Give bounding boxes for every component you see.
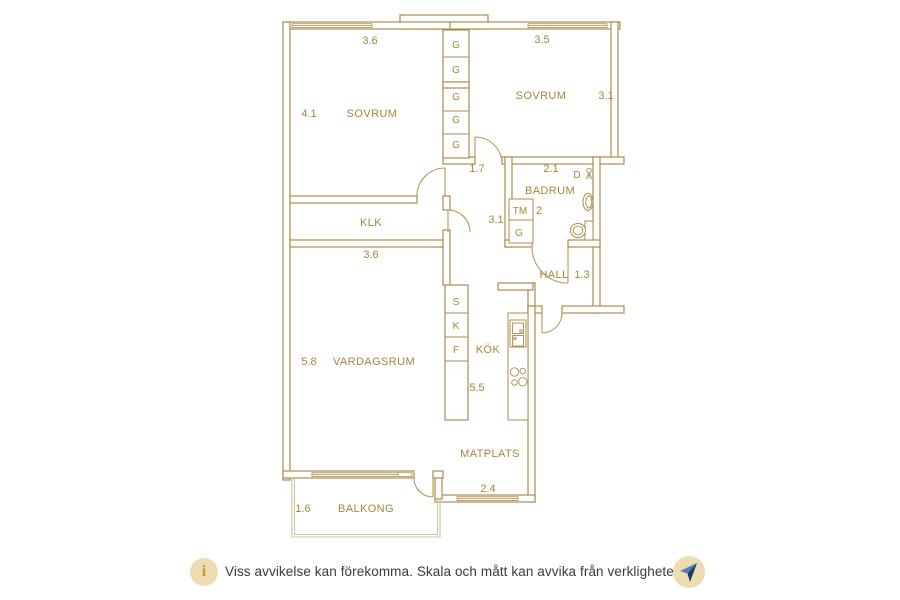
wardrobe-column: G G G G G <box>443 30 469 158</box>
room-label-sovrum-2: SOVRUM <box>516 90 567 102</box>
closet-label: G <box>452 115 460 126</box>
room-label-matplats: MATPLATS <box>460 448 520 460</box>
window <box>398 473 412 477</box>
wall-segment <box>593 157 600 313</box>
room-label-vardagsrum: VARDAGSRUM <box>333 356 415 368</box>
wall-segment <box>443 196 450 210</box>
floorplan-drawing: G G G G G S K F <box>0 0 900 548</box>
shower-label: D <box>573 170 580 181</box>
wall-segment <box>283 22 290 480</box>
dim-balkong: 1.6 <box>295 503 310 515</box>
dim-matplats: 2.4 <box>480 483 495 495</box>
cabinet-label-freezer: F <box>453 345 459 356</box>
wall-segment <box>433 471 443 478</box>
disclaimer-text: Viss avvikelse kan förekomma. Skala och … <box>225 564 685 579</box>
room-label-hall: HALL <box>539 269 568 281</box>
dim-sovrum-2-depth: 3.1 <box>598 90 613 102</box>
dim-sovrum-1-depth: 4.1 <box>301 108 316 120</box>
kitchen-counter <box>508 313 528 420</box>
closet-label: G <box>452 92 460 103</box>
door-klk <box>448 210 470 232</box>
shower-icon <box>586 168 592 179</box>
wall-segment <box>290 240 443 247</box>
dim-corridor: 1.7 <box>469 163 484 175</box>
closet-label: G <box>452 65 460 76</box>
north-arrow-glyph <box>673 556 705 588</box>
wall-segment <box>498 283 533 290</box>
wall-segment <box>562 306 624 313</box>
wall-segment <box>568 240 600 247</box>
door-sovrum-2 <box>475 137 502 164</box>
kitchen-cabinets: S K F <box>445 285 468 420</box>
disclaimer-bar: i Viss avvikelse kan förekomma. Skala oc… <box>0 548 900 600</box>
info-icon-glyph: i <box>202 563 206 581</box>
wall-segment <box>443 82 469 88</box>
cabinet-label-fridge: K <box>453 321 460 332</box>
dim-corridor-2: 3.1 <box>488 214 503 226</box>
dim-klk: 3.6 <box>363 249 378 261</box>
washer-label: TM <box>513 206 527 217</box>
dim-sovrum-1-width: 3.6 <box>362 35 377 47</box>
toilet-icon <box>571 221 594 240</box>
dim-badrum-width: 2.1 <box>543 163 558 175</box>
wall-segment <box>290 196 417 203</box>
wall-segment <box>528 306 535 502</box>
badrum-closet-label: G <box>515 228 523 239</box>
closet-label: G <box>452 40 460 51</box>
cabinet-label-pantry: S <box>453 297 460 308</box>
dim-vardagsrum: 5.8 <box>301 356 316 368</box>
dim-badrum-2: 2 <box>536 205 542 217</box>
door-balkong <box>414 478 433 497</box>
wall-segment <box>435 477 442 499</box>
wall-segment <box>443 230 450 285</box>
info-icon: i <box>190 558 218 586</box>
floorplan: G G G G G S K F <box>0 0 900 548</box>
room-label-kok: KÖK <box>476 344 501 356</box>
room-label-sovrum-1: SOVRUM <box>347 108 398 120</box>
room-label-badrum: BADRUM <box>525 185 575 197</box>
room-label-klk: KLK <box>360 217 382 229</box>
room-label-balkong: BALKONG <box>338 503 394 515</box>
dim-hall: 1.3 <box>574 269 589 281</box>
door-sovrum-1 <box>417 168 445 196</box>
dim-sovrum-2-width: 3.5 <box>534 34 549 46</box>
north-arrow-icon <box>673 556 705 588</box>
dim-kok: 5.5 <box>469 382 484 394</box>
door-entrance <box>542 313 562 333</box>
closet-label: G <box>452 140 460 151</box>
washbasin-icon <box>583 194 593 211</box>
